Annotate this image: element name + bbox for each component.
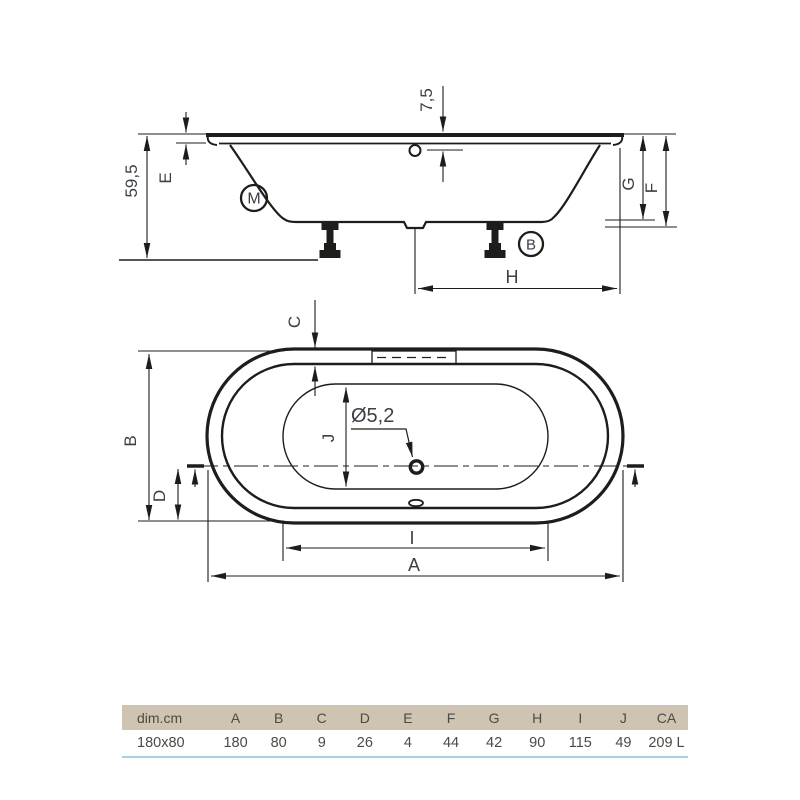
label-drain-offset: D [150,490,169,502]
table-header-cell: J [602,710,645,726]
inner-rim-outline [222,364,608,508]
label-drain-diameter: Ø5,2 [351,405,394,427]
table-header-row: dim.cm A B C D E F G H I J CA [122,705,688,730]
table-header-cell: G [473,710,516,726]
label-overall-length: A [408,555,420,575]
label-mixer-mark: M [247,191,260,208]
table-cell: 9 [300,735,343,751]
table-header-cell: D [343,710,386,726]
table-data-row: 180x80 180 80 9 26 4 44 42 90 115 49 209… [122,730,688,756]
label-overall-width: B [121,435,140,446]
leg-left [320,222,341,258]
table-header-cell: B [257,710,300,726]
table-header-cell: F [429,710,472,726]
table-cell: 115 [559,735,602,751]
table-cell: 180x80 [122,735,214,751]
table-cell: 4 [386,735,429,751]
table-cell: 49 [602,735,645,751]
label-rim-edge: E [156,172,175,183]
table-cell: 26 [343,735,386,751]
overflow-hole-top [409,500,423,506]
top-view [138,300,644,582]
leg-right [485,222,506,258]
label-drain-distance: H [506,267,519,287]
table-header-cell: CA [645,710,688,726]
table-header-cell: C [300,710,343,726]
table-header-cell: E [386,710,429,726]
table-cell: 44 [429,735,472,751]
side-view [119,86,677,294]
table-header-cell: I [559,710,602,726]
label-drain-mark: B [526,237,536,254]
table-cell: 80 [257,735,300,751]
dimension-table: dim.cm A B C D E F G H I J CA 180x80 180… [122,705,688,758]
tub-body-outline [230,145,600,228]
label-inner-width: J [319,434,338,443]
label-inner-length: I [409,528,414,548]
label-body-height: F [642,183,661,193]
table-header-cell: A [214,710,257,726]
table-header-cell: H [516,710,559,726]
label-inner-depth: G [619,177,638,190]
leader-drain-diameter [351,429,413,457]
label-total-height: 59,5 [122,164,141,197]
drain-hole-top [410,461,422,473]
label-overflow-offset: 7,5 [417,88,436,112]
table-header-cell: dim.cm [122,710,214,726]
table-bottom-rule [122,756,688,758]
table-cell: 209 L [645,735,688,751]
table-cell: 180 [214,735,257,751]
label-rim-width: C [285,316,304,328]
table-cell: 90 [516,735,559,751]
outer-rim-outline [207,349,623,523]
table-cell: 42 [473,735,516,751]
bathtub-technical-drawing: 59,5 E 7,5 M B G F H [0,0,800,800]
overflow-hole-side [410,145,421,156]
